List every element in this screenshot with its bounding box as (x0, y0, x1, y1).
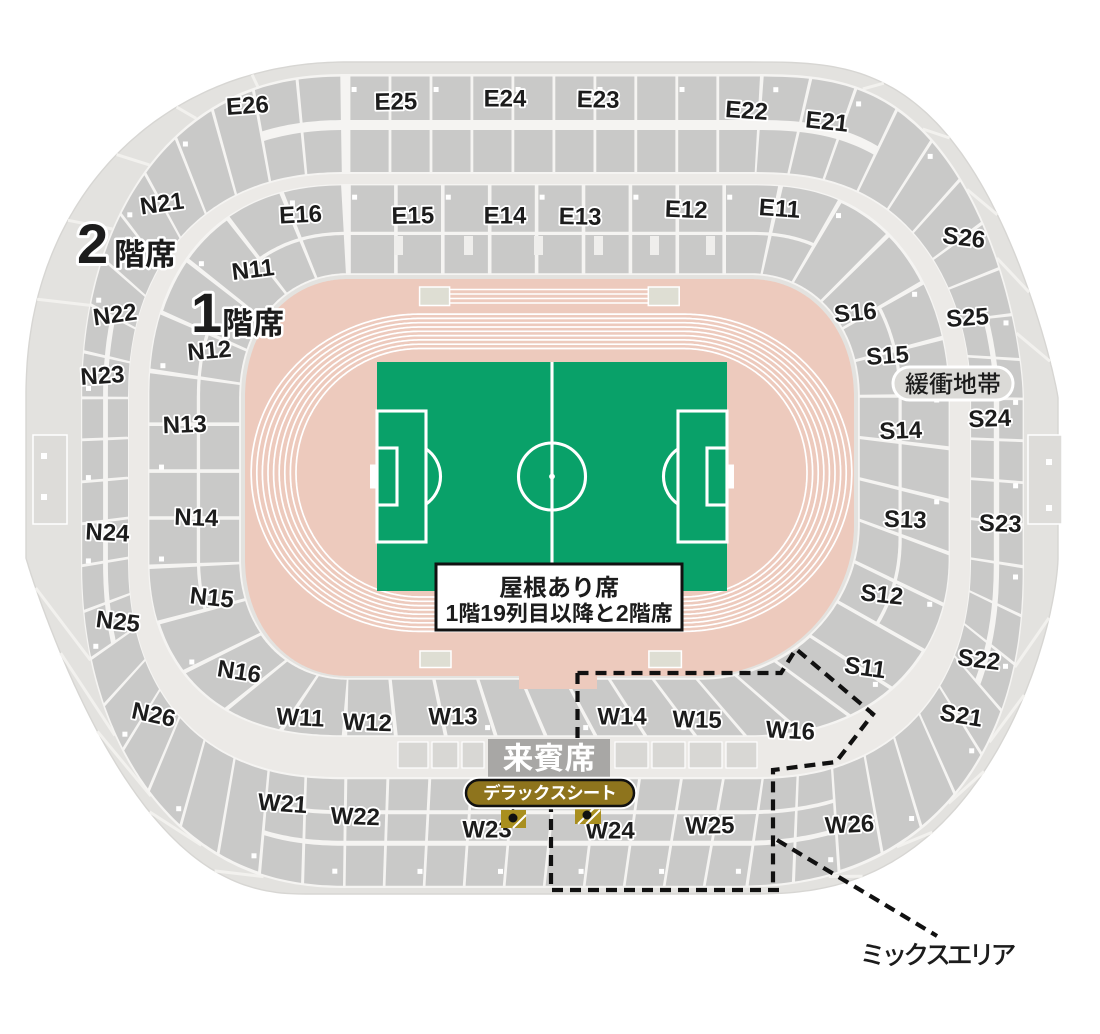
svg-text:W22: W22 (330, 803, 380, 832)
svg-text:N23: N23 (80, 361, 126, 391)
svg-text:N13: N13 (162, 411, 207, 440)
svg-text:E24: E24 (484, 86, 527, 113)
svg-text:W26: W26 (824, 810, 875, 840)
svg-text:S26: S26 (941, 222, 987, 254)
svg-text:S22: S22 (956, 644, 1002, 676)
svg-text:W25: W25 (685, 812, 735, 840)
svg-text:1: 1 (191, 281, 222, 344)
svg-text:W13: W13 (428, 704, 477, 731)
svg-text:E11: E11 (758, 194, 801, 224)
svg-text:S12: S12 (859, 579, 904, 610)
svg-text:E13: E13 (559, 203, 602, 231)
svg-text:E23: E23 (577, 86, 620, 114)
svg-text:S23: S23 (978, 510, 1022, 538)
svg-text:W11: W11 (276, 703, 325, 732)
svg-text:2: 2 (616, 600, 629, 626)
svg-text:W21: W21 (257, 789, 308, 819)
svg-text:W14: W14 (597, 704, 647, 731)
svg-text:E22: E22 (724, 96, 768, 126)
svg-text:1: 1 (446, 600, 459, 626)
svg-text:E25: E25 (374, 88, 417, 116)
svg-text:S14: S14 (879, 417, 923, 445)
svg-text:S13: S13 (883, 506, 927, 534)
svg-text:N11: N11 (230, 254, 276, 286)
svg-text:E12: E12 (664, 196, 708, 224)
svg-text:E21: E21 (804, 106, 849, 137)
svg-text:E16: E16 (279, 200, 323, 229)
svg-text:S24: S24 (968, 405, 1012, 433)
svg-text:N15: N15 (188, 582, 235, 613)
svg-text:N25: N25 (94, 606, 141, 638)
svg-text:E26: E26 (225, 91, 269, 121)
svg-text:S25: S25 (945, 303, 989, 333)
svg-text:S16: S16 (833, 298, 878, 329)
svg-text:S15: S15 (865, 341, 909, 371)
svg-text:E14: E14 (484, 203, 527, 230)
svg-text:N14: N14 (174, 504, 220, 533)
svg-text:2: 2 (77, 212, 108, 275)
svg-text:19: 19 (480, 600, 506, 626)
svg-text:E15: E15 (391, 202, 434, 230)
svg-text:N24: N24 (85, 518, 131, 547)
svg-text:W12: W12 (342, 709, 392, 738)
svg-text:W16: W16 (765, 716, 816, 746)
svg-text:W15: W15 (672, 706, 722, 734)
svg-text:S11: S11 (843, 652, 888, 684)
